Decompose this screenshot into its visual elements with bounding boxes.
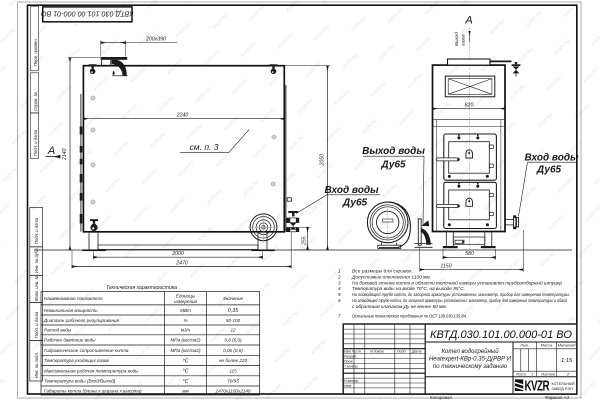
svg-text:МПа (кгс/см2): МПа (кгс/см2) (170, 338, 200, 343)
svg-text:50-100: 50-100 (226, 318, 241, 323)
svg-text:°С: °С (182, 358, 188, 364)
svg-text:Все размеры для справок.: Все размеры для справок. (352, 269, 413, 274)
svg-text:Температура воды (Вход/Выход): Температура воды (Вход/Выход) (44, 379, 116, 384)
svg-text:Котел водогрейный: Котел водогрейный (441, 348, 499, 355)
svg-text:1: 1 (531, 373, 533, 377)
svg-text:7: 7 (338, 313, 341, 318)
svg-text:Инв. № дубл.: Инв. № дубл. (34, 247, 39, 273)
svg-text:0,35: 0,35 (228, 308, 239, 314)
svg-text:газов: газов (461, 34, 466, 46)
svg-text:Подп. и дата: Подп. и дата (33, 129, 38, 156)
svg-text:Диапазон рабочего регулировани: Диапазон рабочего регулирования (43, 318, 120, 323)
svg-text:2140: 2140 (62, 148, 68, 161)
svg-text:Гидравлическое сопротивление к: Гидравлическое сопротивление котла (44, 348, 129, 353)
svg-text:70/95: 70/95 (227, 379, 239, 384)
svg-text:КВТД.030.101.00.000-01 ВО: КВТД.030.101.00.000-01 ВО (41, 10, 134, 19)
svg-text:Перв. примен.: Перв. примен. (33, 38, 38, 66)
svg-text:Копировал: Копировал (430, 395, 452, 400)
svg-text:Лист: Лист (515, 373, 526, 377)
svg-text:мм: мм (182, 388, 189, 393)
svg-text:Масса: Масса (541, 344, 552, 348)
svg-text:А: А (464, 15, 472, 27)
svg-text:255: 255 (301, 236, 307, 246)
svg-text:Инв. № подл.: Инв. № подл. (34, 352, 39, 378)
svg-text:не более 220: не более 220 (219, 358, 247, 363)
svg-text:Т.контр.: Т.контр. (344, 364, 359, 368)
svg-text:Выход: Выход (454, 32, 459, 46)
svg-text:0,06 (0,6): 0,06 (0,6) (223, 348, 243, 353)
svg-text:Номинальная мощность: Номинальная мощность (44, 308, 98, 313)
svg-text:КВТД.030.101.00.000-01 ВО: КВТД.030.101.00.000-01 ВО (430, 329, 572, 341)
svg-text:Остальные технические требован: Остальные технические требования по ОСТ … (352, 313, 467, 318)
svg-text:Масштаб: Масштаб (558, 344, 577, 348)
svg-text:м3/ч: м3/ч (181, 328, 191, 333)
svg-text:Справ. №: Справ. № (33, 92, 38, 111)
svg-text:°С: °С (182, 379, 188, 385)
svg-text:115: 115 (229, 369, 237, 374)
svg-text:измерения: измерения (174, 299, 198, 304)
svg-text:КОТЕЛЬНЫЙ: КОТЕЛЬНЫЙ (552, 382, 575, 386)
svg-text:по техническому заданию: по техническому заданию (433, 364, 508, 370)
svg-text:Выход воды: Выход воды (362, 146, 425, 157)
svg-text:Формат А3: Формат А3 (545, 395, 570, 400)
svg-text:Значение: Значение (223, 296, 244, 301)
svg-text:с обратным клапаном Ду не мен: с обратным клапаном Ду не менее 50 мм. (352, 304, 447, 309)
svg-text:Разраб.: Разраб. (344, 354, 357, 358)
svg-text:6: 6 (338, 298, 341, 303)
svg-text:МВт: МВт (180, 308, 191, 313)
svg-text:Взам. инв. №: Взам. инв. № (34, 275, 39, 301)
svg-text:2470: 2470 (175, 260, 188, 266)
svg-text:Подп. и дата: Подп. и дата (34, 311, 39, 338)
svg-text:580: 580 (465, 251, 474, 257)
svg-text:2050: 2050 (320, 154, 326, 167)
svg-text:Пров.: Пров. (344, 359, 353, 363)
svg-text:KVZR: KVZR (525, 379, 550, 395)
svg-text:5: 5 (338, 292, 341, 297)
svg-text:Наименование показателя: Наименование показателя (44, 296, 103, 301)
svg-text:Утв.: Утв. (344, 384, 352, 388)
svg-text:ЗАВОД РЭП: ЗАВОД РЭП (552, 387, 573, 391)
svg-text:МПа (кгс/см2): МПа (кгс/см2) (170, 348, 200, 353)
svg-text:Подп. и дата: Подп. и дата (34, 217, 39, 244)
svg-text:200х390: 200х390 (145, 37, 166, 43)
svg-text:Температура уходящих газов: Температура уходящих газов (44, 358, 109, 363)
svg-text:Листов: Листов (540, 373, 555, 377)
svg-text:Подп.: Подп. (397, 349, 407, 353)
svg-text:Дата: Дата (411, 349, 421, 353)
svg-text:2000: 2000 (171, 251, 184, 257)
svg-text:Изм Лист: Изм Лист (344, 349, 361, 353)
svg-text:Ду65: Ду65 (342, 198, 368, 209)
svg-text:Единицы: Единицы (176, 294, 196, 299)
svg-text:На подводящей трубе котла, до: На подводящей трубе котла, до запорной а… (352, 291, 570, 297)
svg-text:Вход воды: Вход воды (324, 185, 379, 196)
svg-text:1: 1 (338, 269, 341, 274)
svg-text:2470х1150х2140: 2470х1150х2140 (215, 388, 251, 393)
svg-text:°С: °С (182, 369, 188, 375)
svg-text:Рабочее давление воды: Рабочее давление воды (44, 338, 96, 343)
svg-text:N докум.: N докум. (370, 349, 385, 353)
svg-text:3: 3 (338, 280, 341, 285)
svg-text:1150: 1150 (440, 263, 451, 269)
svg-text:Лит.: Лит. (519, 344, 529, 348)
svg-text:А: А (47, 145, 55, 157)
svg-text:2240: 2240 (176, 112, 189, 118)
svg-text:Максимальная рабочая температу: Максимальная рабочая температура воды (44, 369, 139, 374)
svg-text:Габариты котла (длина х ширина: Габариты котла (длина х ширина х высота) (44, 388, 142, 393)
svg-text:Heatexpert-КВр-0,35-Д(РВР И: Heatexpert-КВр-0,35-Д(РВР И (429, 357, 512, 363)
svg-text:На отводящей трубе котла, до з: На отводящей трубе котла, до запорной ар… (352, 297, 567, 303)
svg-text:Допустимые отклонения ±100 мм.: Допустимые отклонения ±100 мм. (351, 274, 431, 279)
svg-text:820: 820 (465, 102, 474, 108)
svg-text:Ду65: Ду65 (536, 165, 562, 176)
svg-text:%: % (183, 318, 187, 323)
svg-text:2: 2 (337, 274, 341, 279)
svg-text:4: 4 (338, 286, 341, 291)
svg-text:Расход воды: Расход воды (44, 328, 72, 333)
svg-text:0,6 (6,0): 0,6 (6,0) (224, 338, 242, 343)
svg-text:1:15: 1:15 (561, 358, 573, 364)
svg-text:Техническая характеристика: Техническая характеристика (106, 285, 177, 291)
svg-text:На боковой стенке котла в обла: На боковой стенке котла в области топочн… (352, 279, 562, 285)
svg-text:см. п. 3: см. п. 3 (190, 142, 219, 152)
svg-text:Ду65: Ду65 (380, 160, 406, 171)
svg-text:Температура воды на входе 70°С: Температура воды на входе 70°С, на выход… (352, 286, 465, 291)
svg-text:12: 12 (230, 328, 236, 333)
svg-text:Н.контр.: Н.контр. (344, 379, 359, 383)
